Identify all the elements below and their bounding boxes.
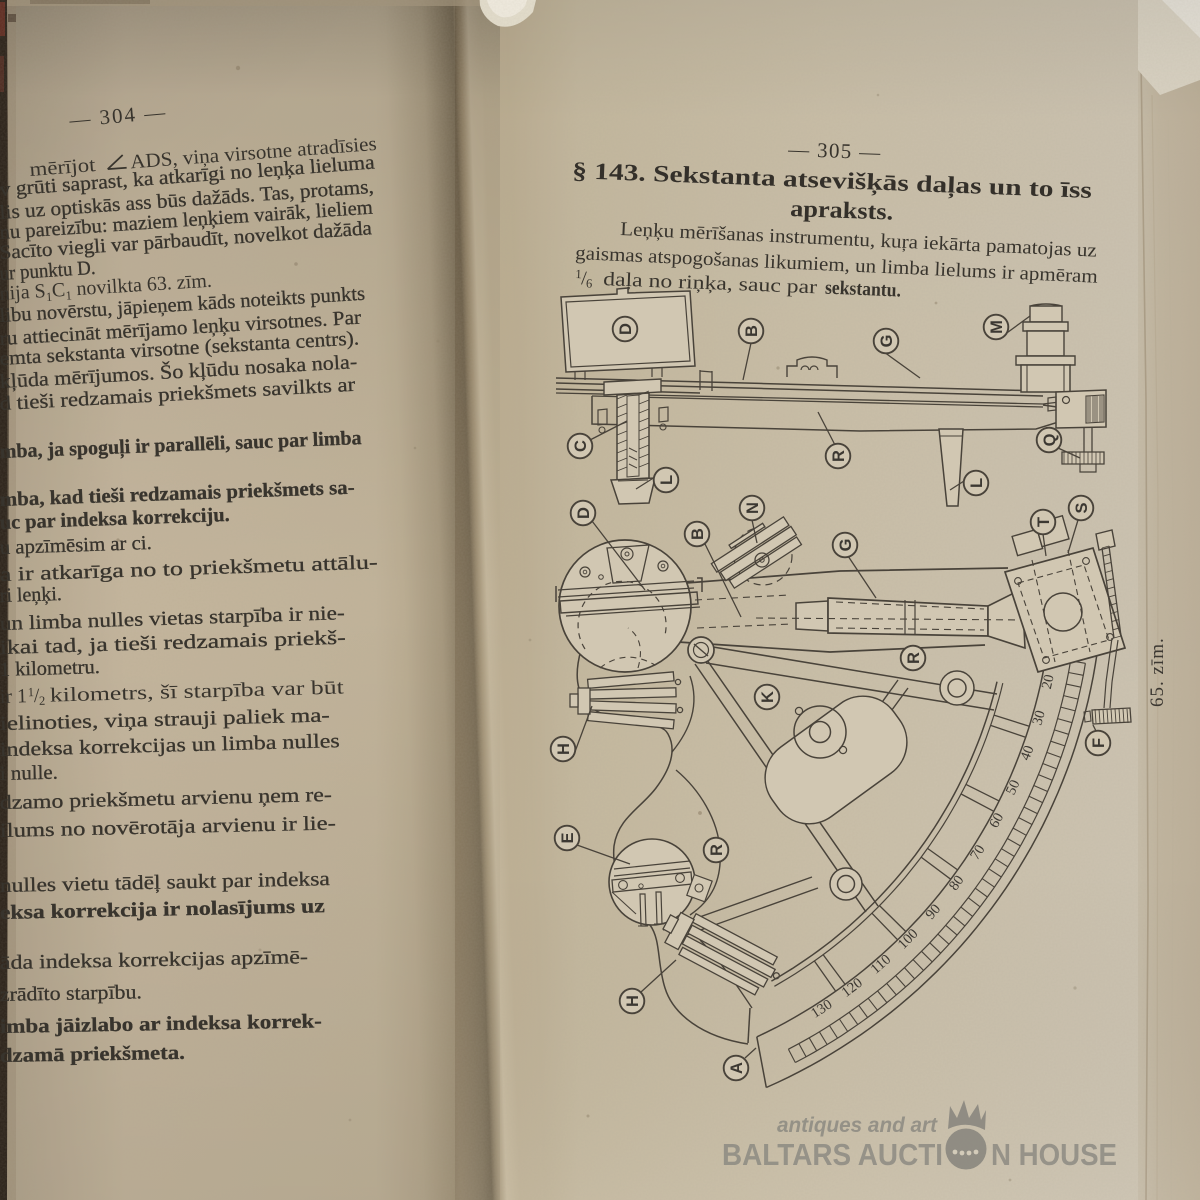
svg-text:6: 6 xyxy=(586,276,593,290)
svg-text:H: H xyxy=(624,995,642,1007)
svg-text:sekstantu.: sekstantu. xyxy=(825,278,902,302)
svg-text:R: R xyxy=(830,450,848,462)
svg-text:B: B xyxy=(689,528,707,540)
svg-text:65. zīm.: 65. zīm. xyxy=(1147,637,1168,707)
svg-text:i nulle.: i nulle. xyxy=(0,762,58,785)
svg-text:A: A xyxy=(728,1062,746,1074)
svg-text:G: G xyxy=(837,539,855,552)
svg-text:F: F xyxy=(1090,738,1108,748)
svg-text:T: T xyxy=(1035,517,1053,527)
svg-text:R: R xyxy=(708,844,726,856)
svg-text:R: R xyxy=(905,652,923,664)
svg-text:N HOUSE: N HOUSE xyxy=(991,1137,1117,1172)
svg-text:D: D xyxy=(617,323,635,335)
svg-text:L: L xyxy=(658,475,676,485)
svg-text:D: D xyxy=(575,507,593,519)
svg-text:apraksts.: apraksts. xyxy=(790,196,894,226)
svg-text:ir 1: ir 1 xyxy=(0,685,27,708)
svg-text:S: S xyxy=(1073,502,1091,513)
svg-text:G: G xyxy=(878,335,896,348)
svg-text:E: E xyxy=(559,832,577,843)
svg-text:K: K xyxy=(759,691,777,703)
svg-text:ri leņķi.: ri leņķi. xyxy=(0,583,62,607)
svg-text:B: B xyxy=(743,325,761,337)
svg-text:L: L xyxy=(968,478,986,488)
svg-text:BALTARS AUCTI: BALTARS AUCTI xyxy=(722,1137,943,1172)
svg-text:N: N xyxy=(744,502,762,514)
svg-text:2: 2 xyxy=(39,694,46,708)
svg-text:M: M xyxy=(988,320,1006,334)
svg-text:C: C xyxy=(572,440,590,452)
svg-text:H: H xyxy=(555,743,573,755)
svg-text:1 kilometru.: 1 kilometru. xyxy=(0,656,100,681)
svg-text:Q: Q xyxy=(1041,433,1059,446)
svg-text:dzamā priekšmeta.: dzamā priekšmeta. xyxy=(0,1042,185,1067)
svg-text:— 305 —: — 305 — xyxy=(787,137,882,164)
svg-text:zrādīto starpību.: zrādīto starpību. xyxy=(0,981,142,1006)
svg-text:antiques and art: antiques and art xyxy=(777,1114,938,1137)
